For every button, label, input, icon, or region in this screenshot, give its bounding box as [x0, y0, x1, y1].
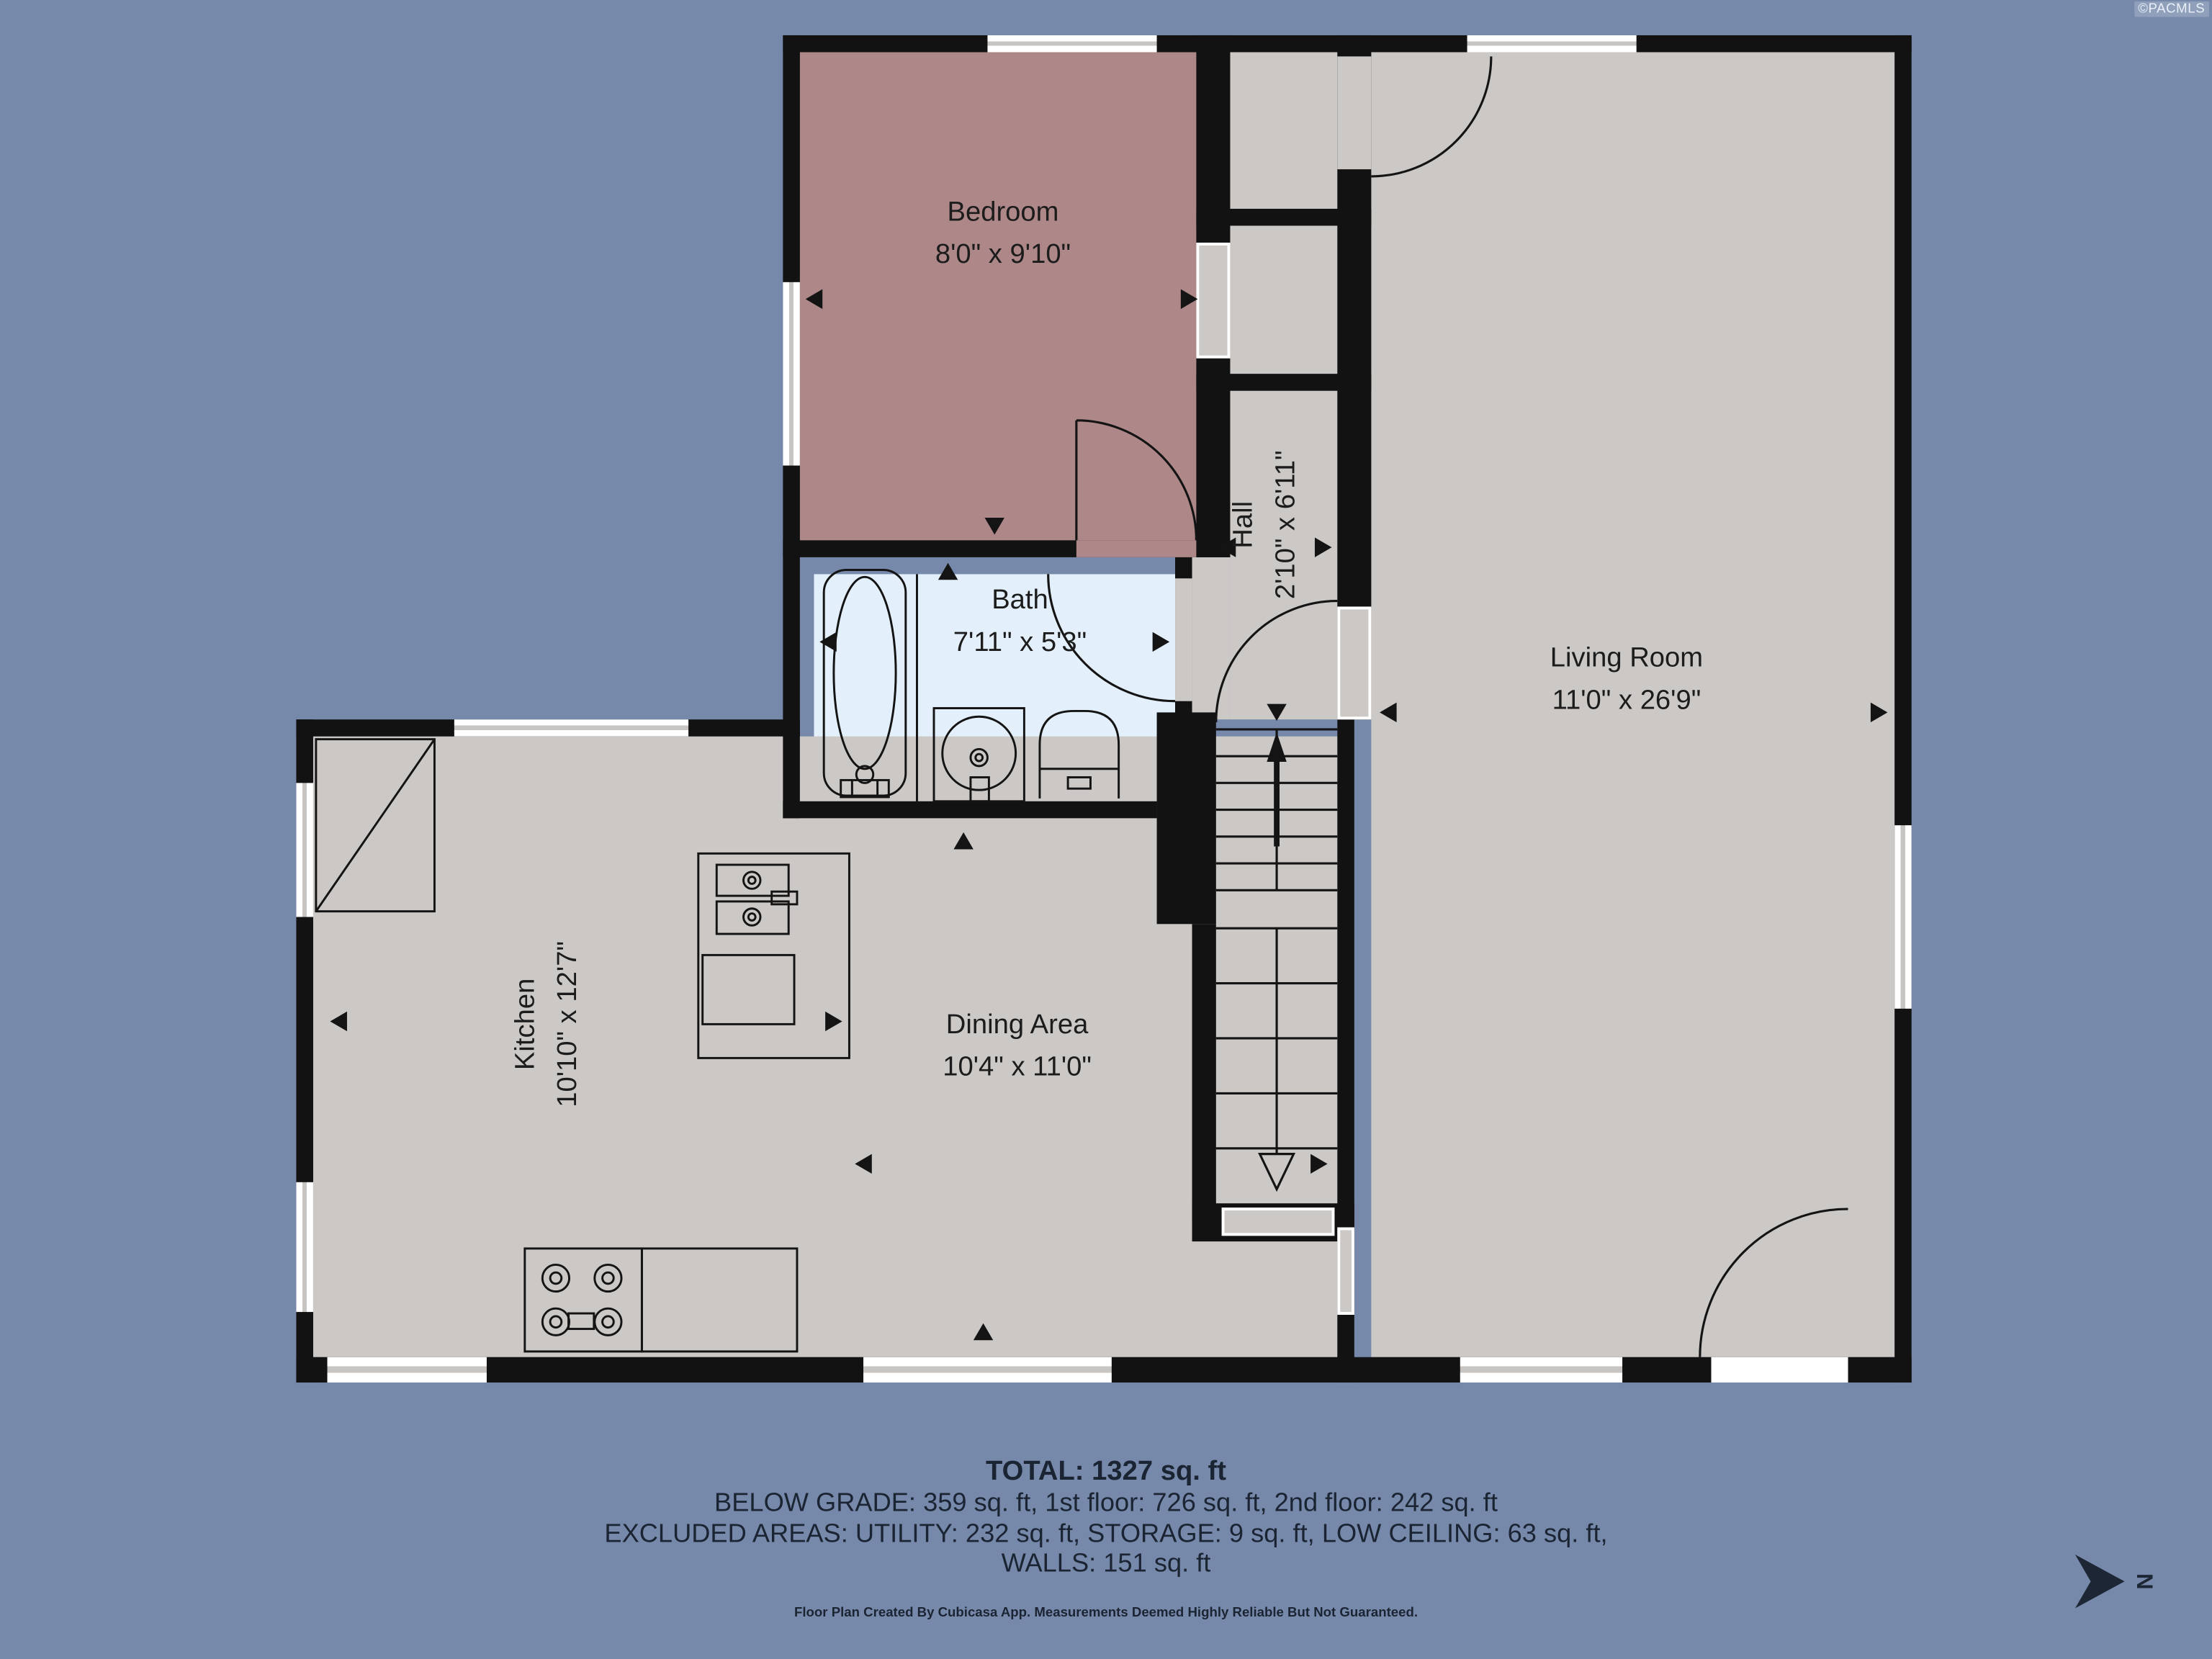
door-opening — [1196, 243, 1230, 359]
window — [1894, 825, 1912, 1009]
mls-watermark: ©PACMLS — [2134, 1, 2209, 17]
window — [1467, 35, 1637, 53]
excluded-areas-text: EXCLUDED AREAS: UTILITY: 232 sq. ft, STO… — [0, 1517, 2212, 1547]
door-opening — [1175, 578, 1192, 701]
closet-floor — [1230, 52, 1337, 208]
label-hall: Hall 2'10" x 6'11" — [1223, 450, 1307, 599]
room-dims: 2'10" x 6'11" — [1265, 450, 1307, 599]
door-opening — [1712, 1357, 1848, 1382]
room-dims: 10'10" x 12'7" — [547, 941, 589, 1107]
door-opening — [1337, 1228, 1354, 1315]
window — [863, 1357, 1112, 1382]
room-dims: 7'11" x 5'3" — [953, 622, 1087, 664]
total-area-text: TOTAL: 1327 sq. ft — [0, 1456, 2212, 1487]
floor-plan-image: N Bedroom 8'0" x 9'10" Hall 2'10" x 6'11… — [0, 0, 2212, 1659]
wall — [783, 801, 1156, 819]
room-name: Kitchen — [505, 941, 547, 1107]
window — [296, 783, 313, 917]
window — [328, 1357, 487, 1382]
room-name: Bedroom — [935, 192, 1071, 234]
floor-areas-text: BELOW GRADE: 359 sq. ft, 1st floor: 726 … — [0, 1487, 2212, 1517]
walls-area-text: WALLS: 151 sq. ft — [0, 1547, 2212, 1578]
stair-bottom-opening — [1222, 1208, 1335, 1236]
door-opening — [1076, 540, 1197, 557]
label-bath: Bath 7'11" x 5'3" — [953, 580, 1087, 664]
floor-plan-canvas: N Bedroom 8'0" x 9'10" Hall 2'10" x 6'11… — [0, 0, 2212, 1659]
room-dims: 10'4" x 11'0" — [943, 1047, 1092, 1089]
wall — [1894, 35, 1912, 1382]
window — [987, 35, 1156, 53]
room-name: Hall — [1223, 450, 1265, 599]
window — [296, 1182, 313, 1312]
room-bedroom-floor — [800, 52, 1197, 540]
mid-closet-floor — [1230, 225, 1337, 374]
window — [454, 719, 688, 737]
wall — [1192, 924, 1216, 1220]
wall-black-mass — [1157, 712, 1216, 924]
area-summary: TOTAL: 1327 sq. ft BELOW GRADE: 359 sq. … — [0, 1456, 2212, 1620]
room-dims: 11'0" x 26'9" — [1550, 680, 1703, 721]
door-opening — [1337, 606, 1371, 719]
window — [1460, 1357, 1622, 1382]
label-living: Living Room 11'0" x 26'9" — [1550, 638, 1703, 721]
window — [783, 282, 800, 466]
room-name: Living Room — [1550, 638, 1703, 680]
label-dining: Dining Area 10'4" x 11'0" — [943, 1005, 1092, 1089]
room-dims: 8'0" x 9'10" — [935, 234, 1071, 276]
room-name: Bath — [953, 580, 1087, 622]
label-bedroom: Bedroom 8'0" x 9'10" — [935, 192, 1071, 276]
room-name: Dining Area — [943, 1005, 1092, 1047]
wall — [1196, 209, 1371, 226]
disclaimer-text: Floor Plan Created By Cubicasa App. Meas… — [0, 1605, 2212, 1621]
wall — [1196, 374, 1371, 391]
door-opening — [1337, 56, 1371, 169]
label-kitchen: Kitchen 10'10" x 12'7" — [505, 941, 589, 1107]
